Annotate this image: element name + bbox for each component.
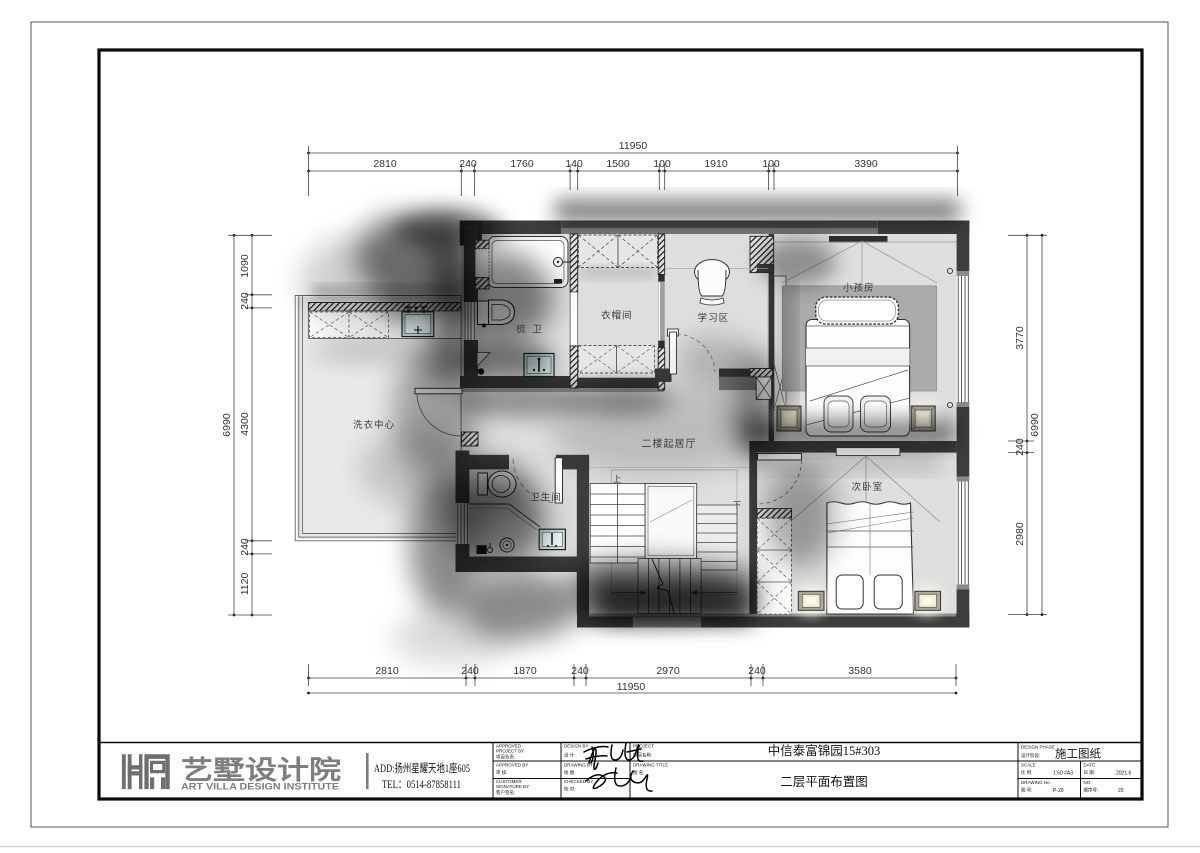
svg-text:小孩房: 小孩房 (843, 282, 875, 294)
svg-text:100: 100 (762, 158, 780, 170)
svg-text:中信泰富锦园15#303: 中信泰富锦园15#303 (768, 743, 881, 758)
svg-text:2980: 2980 (1014, 522, 1026, 546)
svg-text:6990: 6990 (1029, 413, 1041, 437)
svg-text:设计阶段:: 设计阶段: (1021, 752, 1040, 759)
svg-text:1500: 1500 (606, 158, 630, 170)
svg-text:2970: 2970 (656, 665, 680, 677)
svg-text:比 例:: 比 例: (1021, 769, 1033, 776)
svg-text:240: 240 (571, 665, 589, 677)
svg-text:梳 卫: 梳 卫 (516, 324, 544, 336)
svg-text:1870: 1870 (513, 665, 537, 677)
svg-text:3580: 3580 (848, 665, 872, 677)
svg-text:3390: 3390 (854, 158, 878, 170)
svg-text:DRAWING TITLE: DRAWING TITLE (633, 763, 668, 768)
svg-text:CUSTOMER: CUSTOMER (496, 779, 522, 784)
svg-text:240: 240 (748, 665, 766, 677)
svg-text:设 计:: 设 计: (564, 752, 576, 759)
svg-text:洗衣中心: 洗衣中心 (353, 419, 395, 431)
svg-text:1120: 1120 (239, 573, 251, 596)
svg-text:ART VILLA DESIGN INSTITUTE: ART VILLA DESIGN INSTITUTE (181, 782, 339, 792)
svg-text:20: 20 (1118, 788, 1124, 794)
svg-text:客户签名:: 客户签名: (496, 789, 515, 796)
svg-text:ADD:扬州星耀天地1座605: ADD:扬州星耀天地1座605 (374, 761, 470, 775)
svg-text:2810: 2810 (375, 665, 399, 677)
svg-text:TEL：0514-87858111: TEL：0514-87858111 (382, 779, 461, 791)
svg-text:NO.: NO. (1084, 780, 1092, 785)
svg-text:6990: 6990 (221, 413, 233, 437)
svg-text:240: 240 (1014, 438, 1026, 456)
svg-text:240: 240 (459, 158, 477, 170)
svg-text:二层平面布置图: 二层平面布置图 (780, 775, 868, 789)
svg-text:审 核:: 审 核: (496, 769, 508, 776)
svg-text:240: 240 (239, 292, 251, 310)
svg-text:CHECKED BY: CHECKED BY (564, 779, 593, 784)
svg-text:次卧室: 次卧室 (852, 481, 884, 493)
svg-text:P-20: P-20 (1053, 788, 1064, 794)
svg-text:240: 240 (461, 665, 479, 677)
svg-text:2021.6: 2021.6 (1116, 771, 1132, 777)
svg-text:二楼起居厅: 二楼起居厅 (642, 437, 697, 450)
svg-text:上: 上 (613, 474, 622, 484)
svg-text:学习区: 学习区 (698, 312, 730, 324)
svg-text:PROJECT BY: PROJECT BY (496, 749, 524, 754)
svg-text:施工图纸: 施工图纸 (1055, 748, 1101, 761)
svg-text:SCALE: SCALE (1021, 763, 1036, 768)
svg-text:240: 240 (239, 538, 251, 556)
svg-text:项目负责:: 项目负责: (496, 754, 515, 761)
svg-text:艺墅设计院: 艺墅设计院 (181, 755, 341, 785)
svg-text:1910: 1910 (704, 158, 728, 170)
svg-text:下: 下 (733, 500, 742, 510)
svg-text:SIGNATURE BY: SIGNATURE BY (496, 784, 529, 789)
svg-text:DRAWING No: DRAWING No (1021, 780, 1050, 785)
svg-text:140: 140 (565, 158, 583, 170)
svg-text:APPROVED BY: APPROVED BY (496, 763, 528, 768)
svg-text:校 对:: 校 对: (564, 786, 576, 793)
svg-text:图 名:: 图 名: (633, 769, 645, 776)
svg-text:11950: 11950 (619, 140, 648, 152)
svg-text:11950: 11950 (617, 681, 646, 693)
svg-text:DATE: DATE (1084, 763, 1096, 768)
svg-text:1760: 1760 (510, 158, 534, 170)
svg-text:顺序号:: 顺序号: (1084, 787, 1099, 794)
svg-text:项目名称:: 项目名称: (633, 752, 652, 759)
svg-text:DESIGN PHASE: DESIGN PHASE (1021, 745, 1055, 750)
svg-text:DESIGN BY: DESIGN BY (564, 744, 589, 749)
svg-text:卫生间: 卫生间 (530, 492, 562, 504)
svg-text:APPROVED: APPROVED (496, 744, 522, 749)
svg-text:衣帽间: 衣帽间 (601, 310, 633, 322)
svg-text:100: 100 (653, 158, 671, 170)
svg-text:3770: 3770 (1014, 326, 1026, 350)
svg-text:2810: 2810 (373, 158, 397, 170)
svg-text:PROJECT: PROJECT (633, 744, 654, 749)
svg-text:4300: 4300 (239, 412, 251, 436)
svg-text:1:50 #A3: 1:50 #A3 (1053, 771, 1073, 777)
svg-text:绘 图:: 绘 图: (564, 769, 576, 776)
svg-text:1090: 1090 (239, 254, 251, 278)
